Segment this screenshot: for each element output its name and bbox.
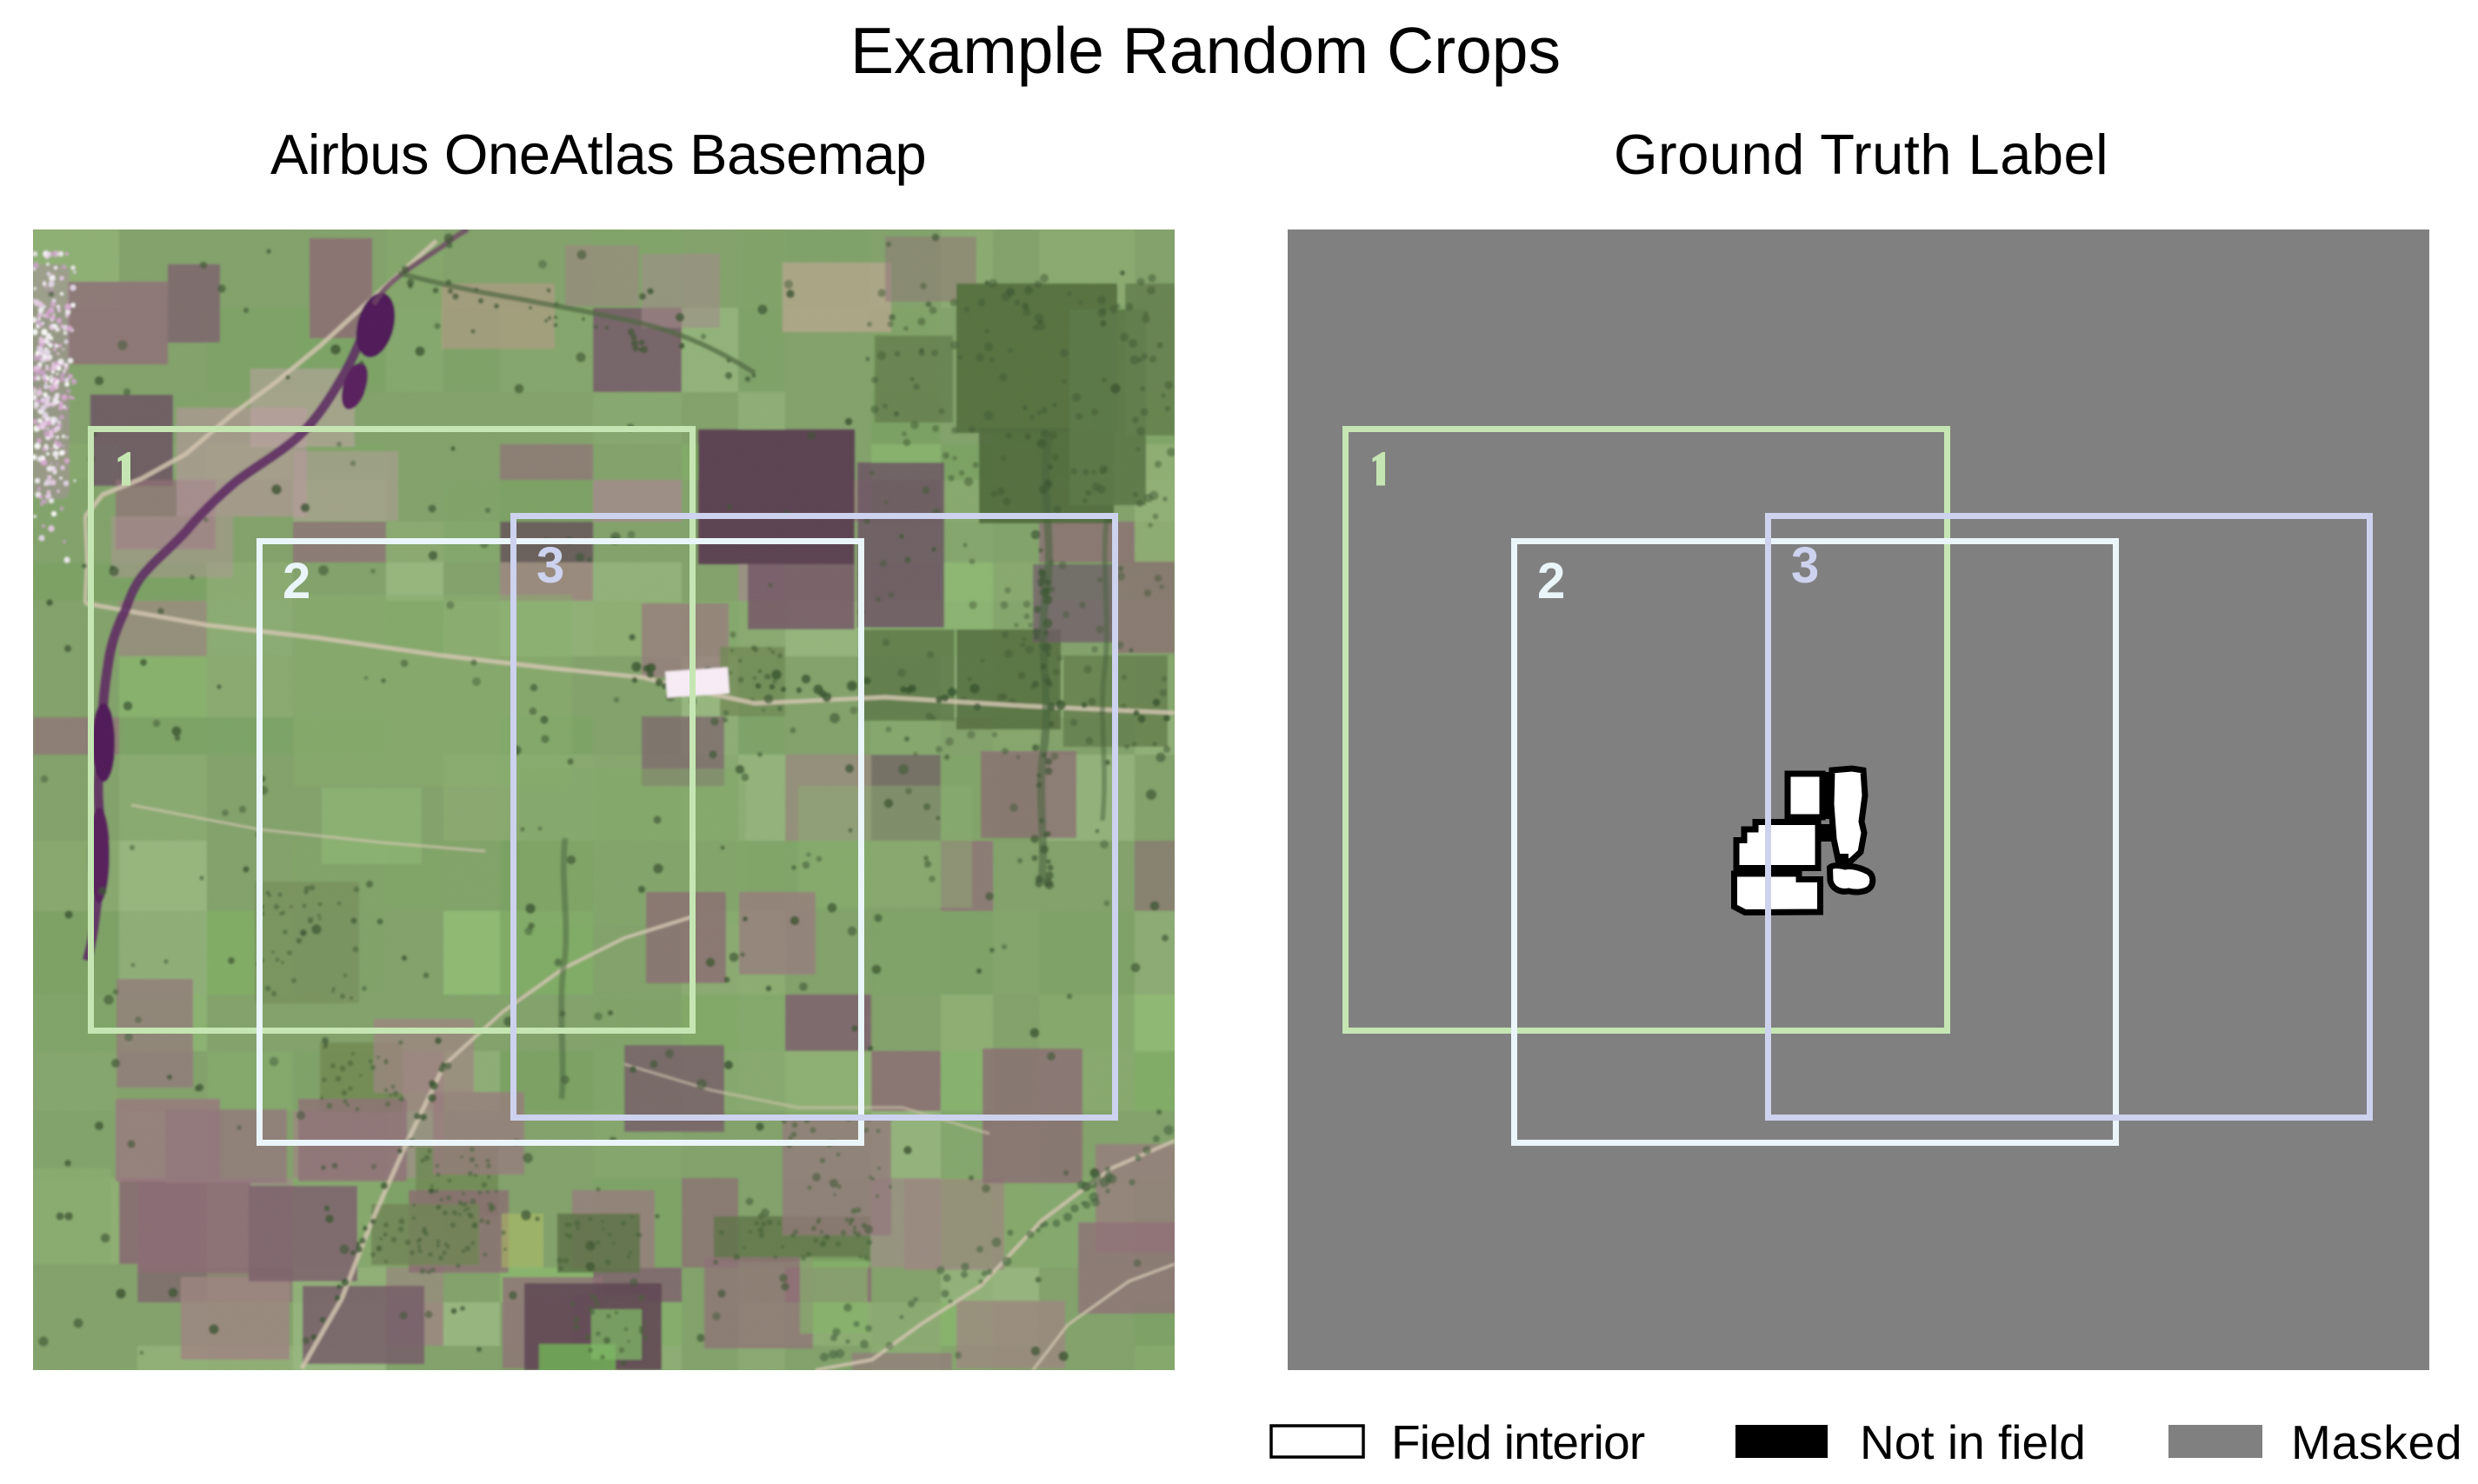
svg-text:2: 2: [283, 553, 310, 609]
svg-text:3: 3: [1791, 537, 1819, 594]
svg-text:3: 3: [536, 537, 564, 594]
svg-text:2: 2: [1537, 553, 1565, 609]
